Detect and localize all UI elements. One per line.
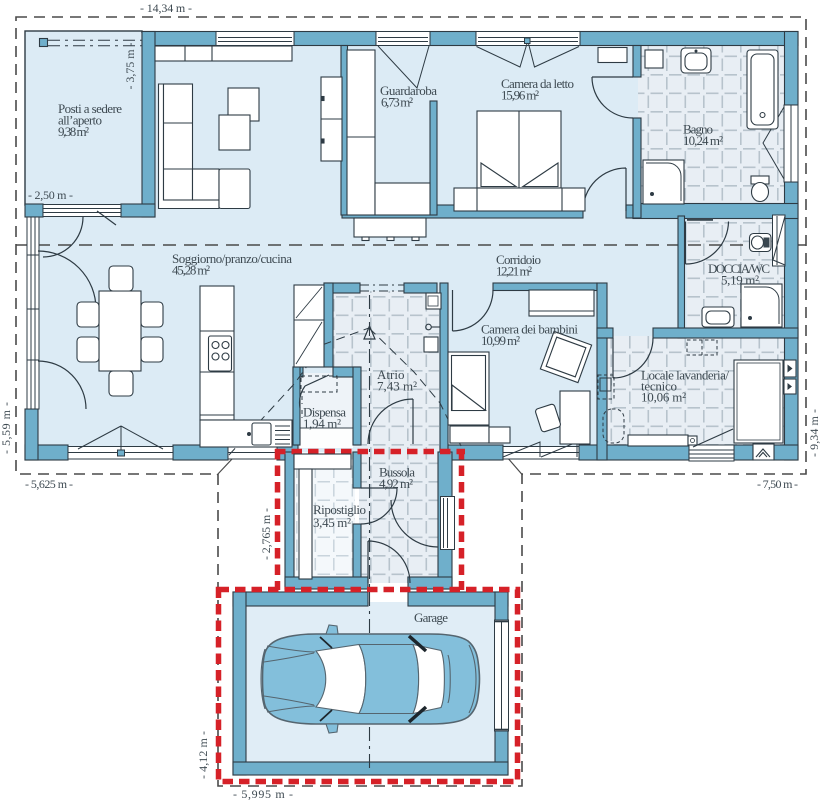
svg-text:- 14,34 m -: - 14,34 m - [140, 1, 192, 15]
svg-text:6,73 m²: 6,73 m² [381, 95, 413, 110]
svg-text:- 9,34 m -: - 9,34 m - [807, 409, 821, 457]
svg-text:12,21 m²: 12,21 m² [496, 264, 532, 279]
svg-text:10,06 m²: 10,06 m² [641, 390, 686, 405]
svg-text:10,99 m²: 10,99 m² [481, 333, 520, 348]
svg-text:- 2,765 m -: - 2,765 m - [259, 508, 273, 560]
svg-text:45,28 m²: 45,28 m² [172, 263, 210, 278]
svg-text:- 3,75 m -: - 3,75 m - [123, 43, 137, 90]
svg-text:5,19 m²: 5,19 m² [721, 273, 759, 288]
svg-text:- 5,625 m -: - 5,625 m - [25, 477, 73, 491]
svg-text:15,96 m²: 15,96 m² [501, 88, 539, 103]
svg-text:- 2,50 m -: - 2,50 m - [28, 188, 73, 202]
svg-text:- 5,59 m -: - 5,59 m - [0, 402, 13, 454]
svg-text:- 4,12 m -: - 4,12 m - [196, 731, 210, 779]
svg-text:7,43 m²: 7,43 m² [377, 379, 417, 394]
svg-text:1,94 m²: 1,94 m² [303, 416, 341, 431]
svg-text:Garage: Garage [414, 610, 448, 625]
svg-text:9,38 m²: 9,38 m² [58, 124, 89, 139]
svg-text:- 5,995 m -: - 5,995 m - [233, 787, 293, 800]
svg-text:3,45 m²: 3,45 m² [313, 515, 351, 530]
svg-text:- 7,50 m -: - 7,50 m - [757, 477, 798, 491]
svg-text:4,92 m²: 4,92 m² [379, 476, 413, 491]
svg-text:10,24 m²: 10,24 m² [683, 133, 723, 148]
